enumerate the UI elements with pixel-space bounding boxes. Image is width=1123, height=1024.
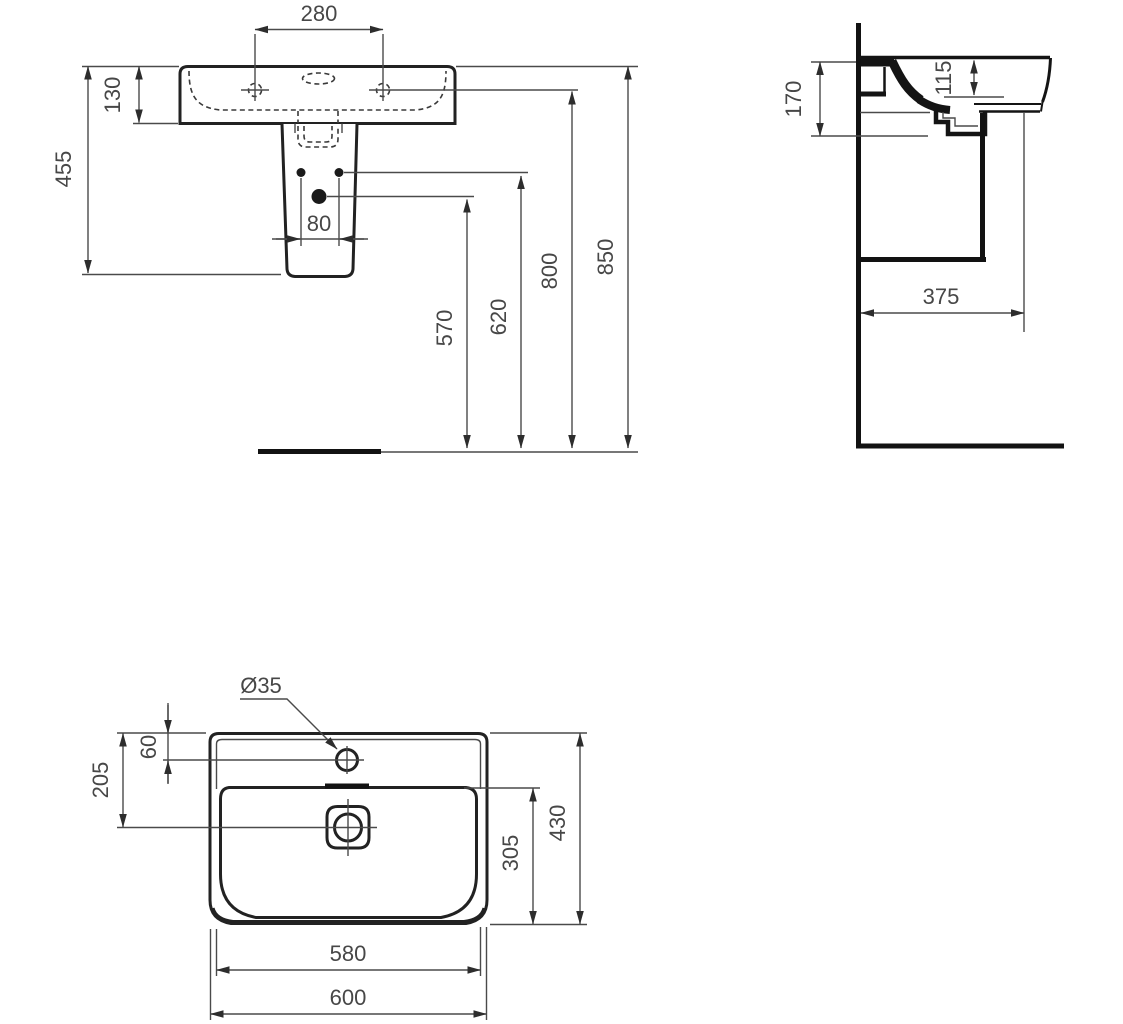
fixing-hole-right	[335, 168, 344, 177]
dim-800: 800	[537, 92, 572, 449]
dim-305-label: 305	[498, 835, 523, 872]
side-view: 170 115 375	[781, 23, 1064, 448]
drain-outlet-hole	[312, 189, 327, 204]
dim-850-label: 850	[593, 239, 618, 276]
dim-800-label: 800	[537, 253, 562, 290]
dim-205-label: 205	[88, 762, 113, 799]
dim-170-label: 170	[781, 81, 806, 118]
washbasin-drawing: 280 130 455 80 570	[0, 0, 1123, 1024]
dim-170: 170	[781, 62, 928, 136]
dim-455-label: 455	[51, 151, 76, 188]
dim-580-label: 580	[330, 941, 367, 966]
ledge-end-cap	[1041, 102, 1043, 112]
basin-outline	[180, 67, 455, 124]
front-view: 280 130 455 80 570	[51, 1, 638, 452]
dim-80-label: 80	[307, 211, 331, 236]
dim-d35-label: Ø35	[240, 673, 282, 698]
dim-115-label: 115	[931, 60, 956, 95]
dim-280-label: 280	[301, 1, 338, 26]
dim-130: 130	[82, 67, 179, 124]
dim-430: 430	[490, 733, 587, 925]
fixing-hole-left	[297, 168, 306, 177]
dim-580: 580	[217, 927, 481, 976]
dim-375-label: 375	[923, 284, 960, 309]
dim-60-label: 60	[136, 735, 161, 759]
dim-620-label: 620	[486, 299, 511, 336]
dim-375: 375	[861, 112, 1024, 332]
plan-view: Ø35 60 205 430 305	[88, 673, 587, 1020]
technical-drawing-page: 280 130 455 80 570	[0, 0, 1123, 1024]
dim-600-label: 600	[330, 985, 367, 1010]
dim-115: 115	[931, 60, 974, 95]
dim-430-label: 430	[545, 805, 570, 842]
section-bowl-back	[892, 61, 921, 100]
basin-front-face	[1043, 58, 1051, 102]
dim-570-label: 570	[432, 310, 457, 347]
dim-130-label: 130	[100, 77, 125, 114]
